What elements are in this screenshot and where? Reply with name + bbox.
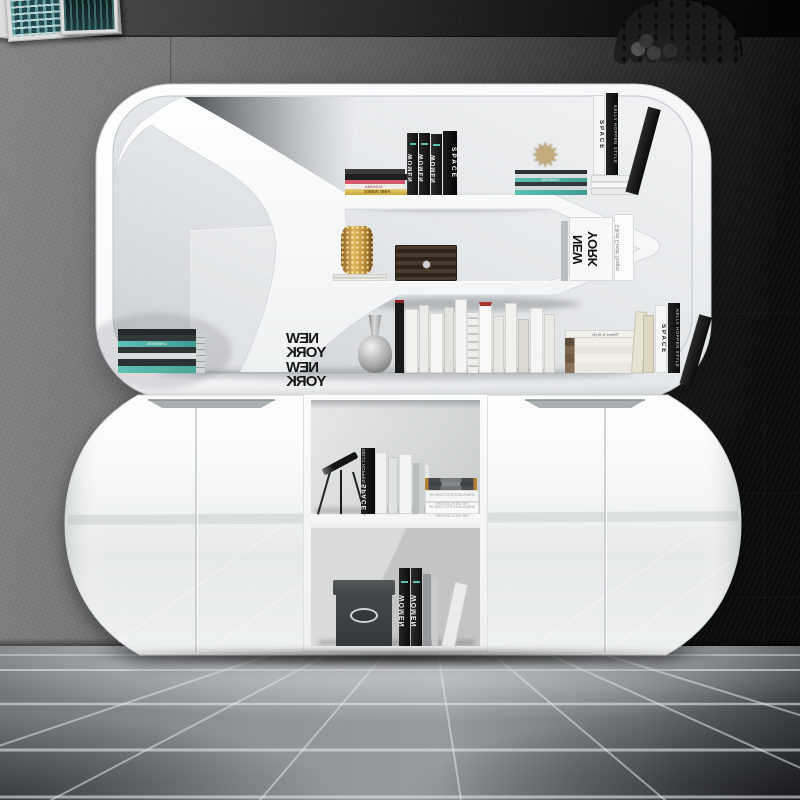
- book-spine-kelly-hoppen: KELLY HOPPEN STYLE: [668, 303, 680, 373]
- cream-book: [643, 315, 654, 373]
- book-spine-women: WOMEN: [411, 568, 422, 646]
- magazine-spine: URBAN ARCHITECTURE OF THE 20TH CENTURY: [425, 502, 479, 514]
- cabinet-base-shadow: [70, 650, 730, 668]
- picture-frame: [59, 0, 119, 35]
- book-spine-women: WOMEN: [419, 133, 430, 195]
- gloss-sideboard-cabinet: KELLY HOPPEN SPACE URBAN AR: [58, 392, 747, 662]
- thin-gray-book: [561, 221, 568, 281]
- book-spine: FINE WINES: [345, 189, 409, 195]
- starburst-ornament: ✹: [531, 139, 560, 173]
- magazine-spine: URBAN ARCHITECTURE OF THE 20TH CENTURY: [425, 490, 479, 502]
- wall-groove: [763, 392, 765, 644]
- book-spine-space: SPACE: [443, 131, 457, 195]
- new-york-bookend-text: NEW YORK NEW YORK: [287, 332, 353, 373]
- product-photo-bookcase-scene: SONOMA FINE WINES WOMEN WOMEN WOMEN SPAC…: [0, 0, 800, 800]
- telescope: [319, 452, 367, 514]
- wall-groove: [712, 312, 800, 314]
- gold-mesh-vase: [341, 226, 373, 274]
- book-spine-women: WOMEN: [399, 568, 410, 646]
- gray-book-pair: [423, 574, 439, 646]
- book-spine-kelly-hoppen: KELLY HOPPEN STYLE: [606, 93, 618, 175]
- open-display-niche: KELLY HOPPEN SPACE URBAN AR: [303, 394, 488, 652]
- white-book-row: [395, 299, 555, 373]
- silver-vase: [358, 315, 392, 373]
- framed-artwork: [63, 0, 114, 31]
- wall-groove: [740, 492, 800, 494]
- book-spine-space-white: SPACE: [593, 95, 605, 175]
- tile-floor: [0, 646, 800, 800]
- erwitt-snaps-book: Elliott Erwitt Snaps: [614, 214, 634, 281]
- curved-bookcase-top-unit: SONOMA FINE WINES WOMEN WOMEN WOMEN SPAC…: [95, 83, 712, 400]
- teal-book-stack: CHANSON: [118, 328, 196, 373]
- storage-box: [333, 580, 395, 646]
- white-book-group: [375, 454, 419, 514]
- wall-groove: [740, 596, 800, 598]
- book-spine-kelly-space: KELLY HOPPEN SPACE: [361, 448, 375, 514]
- book-spine-women: WOMEN: [407, 133, 418, 195]
- flat-book-stack: SONOMA FINE WINES: [345, 169, 409, 195]
- page-edges: [196, 335, 205, 373]
- magazine-stack: URBAN ARCHITECTURE OF THE 20TH CENTURY U…: [425, 478, 477, 514]
- niche-interior: KELLY HOPPEN SPACE URBAN AR: [311, 400, 480, 646]
- teal-book-stack: CHANSON: [515, 170, 587, 195]
- small-book-stack: [333, 274, 385, 281]
- walnut-box: [395, 245, 457, 281]
- book-spine-women: WOMEN: [431, 134, 442, 195]
- new-york-book: NEW YORK: [569, 217, 613, 281]
- pendant-lamp: [608, 0, 748, 64]
- book-spine-space-white: SPACE: [655, 305, 667, 373]
